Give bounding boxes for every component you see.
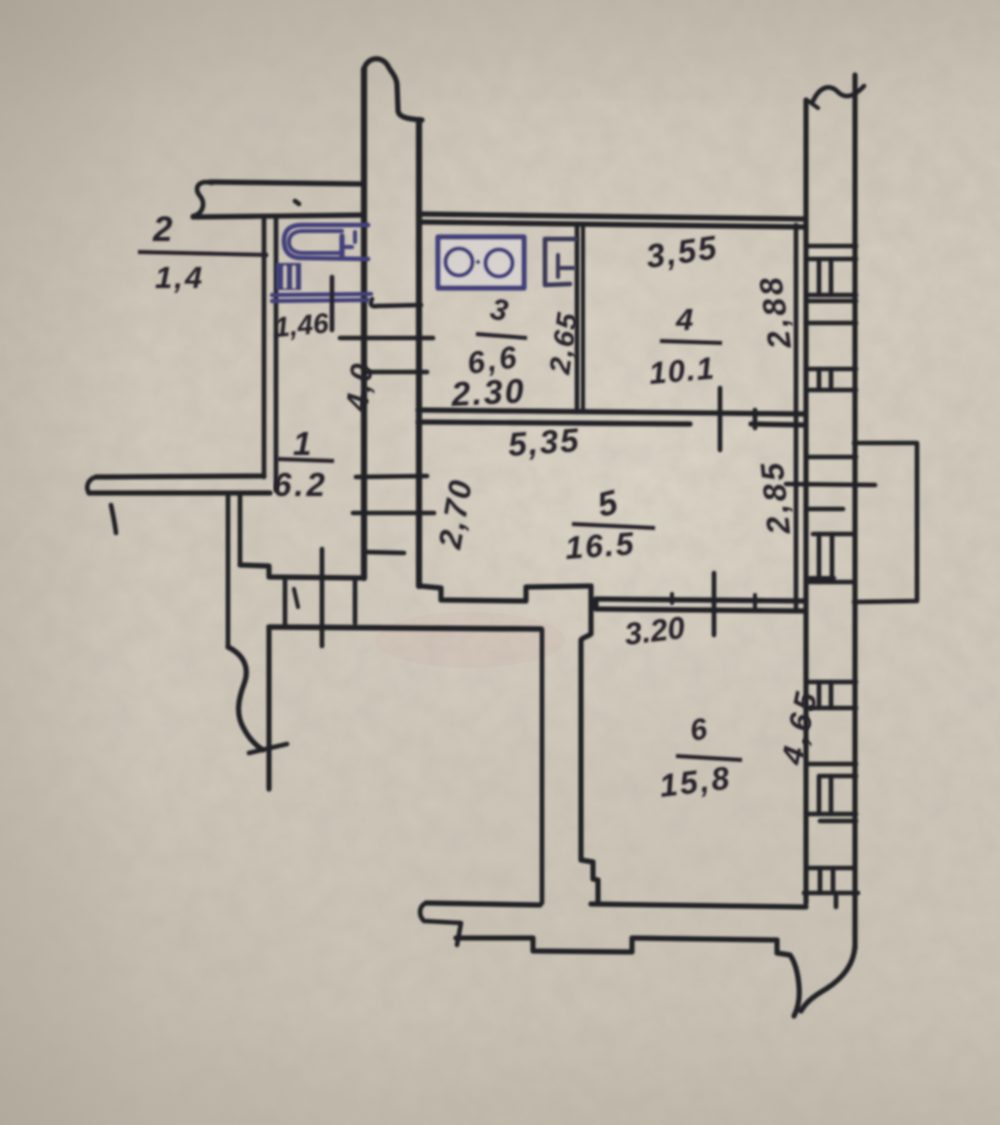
svg-text:2: 2 xyxy=(152,210,173,249)
svg-text:4: 4 xyxy=(675,302,693,337)
svg-text:4,0: 4,0 xyxy=(339,360,380,414)
svg-text:1,46: 1,46 xyxy=(273,307,330,343)
svg-text:16.5: 16.5 xyxy=(564,525,637,566)
svg-text:3.20: 3.20 xyxy=(623,610,687,652)
svg-text:5,35: 5,35 xyxy=(507,421,582,463)
svg-text:2.30: 2.30 xyxy=(449,372,526,414)
svg-text:10.1: 10.1 xyxy=(648,350,717,391)
svg-text:6.2: 6.2 xyxy=(273,466,328,503)
svg-text:1: 1 xyxy=(293,425,311,462)
svg-text:1,4: 1,4 xyxy=(155,260,204,295)
